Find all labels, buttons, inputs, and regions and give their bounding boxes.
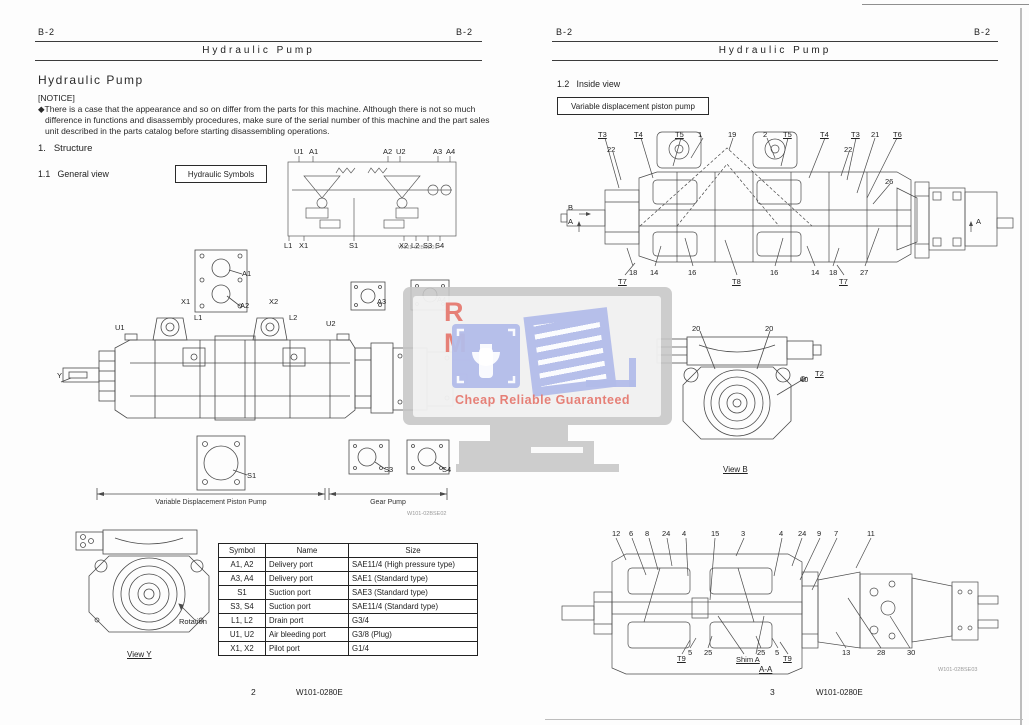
table-cell: Air bleeding port	[266, 628, 349, 642]
table-cell: Delivery port	[266, 558, 349, 572]
section-title: Hydraulic Pump	[38, 73, 144, 87]
hydraulic-symbols-diagram: W101-02BSE01 U1A1A2U2A3A4L1X1S1X2L2S3S4	[280, 146, 460, 251]
diagram-label: A4	[437, 296, 446, 304]
diagram-label: 18	[829, 269, 837, 277]
diagram-label: 4	[779, 530, 783, 538]
diagram-label: 15	[711, 530, 719, 538]
diagram-label: 1	[698, 131, 702, 139]
diagram-label: 5	[688, 649, 692, 657]
diagram-label: S3	[384, 466, 393, 474]
table-header-row: Symbol Name Size	[219, 544, 478, 558]
header-rule-r2	[552, 60, 998, 61]
page-edge-right	[1020, 8, 1022, 725]
diagram-label: T3	[598, 131, 607, 139]
page-code-right-r: B-2	[974, 27, 991, 37]
diagram-label: T4	[634, 131, 643, 139]
chapter-title: Hydraulic Pump	[35, 45, 482, 56]
general-view-drawing	[55, 248, 470, 523]
monitor-neck	[490, 425, 568, 441]
diagram-label: A2	[240, 302, 249, 310]
diagram-label: 9	[817, 530, 821, 538]
page-edge-top	[862, 4, 1029, 5]
diagram-label: L2	[411, 242, 419, 250]
chapter-title-r: Hydraulic Pump	[552, 45, 998, 56]
manual-spread: B-2 B-2 Hydraulic Pump Hydraulic Pump [N…	[0, 0, 1029, 725]
table-row: A1, A2Delivery portSAE11/4 (High pressur…	[219, 558, 478, 572]
diagram-label: S1	[247, 472, 256, 480]
heading-structure: 1. Structure	[38, 143, 92, 154]
diagram-label: 6	[629, 530, 633, 538]
diagram-label: X1	[181, 298, 190, 306]
table-cell: U1, U2	[219, 628, 266, 642]
figure-code: W101-02BSE02	[407, 511, 446, 517]
diagram-label: 2	[763, 131, 767, 139]
section-aa-diagram: A-A W101-02BSE03 12682441534249711T9525S…	[560, 520, 1022, 682]
port-table-body: A1, A2Delivery portSAE11/4 (High pressur…	[219, 558, 478, 656]
diagram-label: B	[568, 204, 573, 212]
diagram-label: A	[568, 218, 573, 226]
table-cell: SAE1 (Standard type)	[349, 572, 478, 586]
diagram-label: A3	[433, 148, 442, 156]
hydraulic-symbols-drawing	[280, 146, 460, 251]
diagram-label: T8	[732, 278, 741, 286]
diagram-label: 26	[885, 178, 893, 186]
diagram-label: A1	[309, 148, 318, 156]
table-cell: SAE11/4 (Standard type)	[349, 600, 478, 614]
monitor-base	[456, 464, 619, 472]
diagram-label: A1	[242, 270, 251, 278]
diagram-label: 25	[704, 649, 712, 657]
diagram-label: L1	[284, 242, 292, 250]
view-b-caption: View B	[723, 465, 748, 474]
diagram-label: 40	[800, 376, 808, 384]
diagram-label: T4	[820, 131, 829, 139]
diagram-label: X2	[399, 242, 408, 250]
doc-number-left: W101-0280E	[296, 688, 343, 697]
book-icon-edge	[629, 358, 636, 387]
diagram-label: T7	[839, 278, 848, 286]
pedestal-slot	[531, 447, 583, 453]
diagram-label: 19	[728, 131, 736, 139]
view-b-diagram: View B 202040T2	[655, 313, 870, 481]
page-code-right: B-2	[456, 27, 473, 37]
table-cell: L1, L2	[219, 614, 266, 628]
notice-label: [NOTICE]	[38, 93, 75, 103]
diagram-label: 7	[834, 530, 838, 538]
diagram-label: Y	[57, 372, 62, 380]
figure-code: W101-02BSE03	[938, 667, 977, 673]
diagram-label: U2	[326, 320, 336, 328]
diagram-label: T9	[783, 655, 792, 663]
table-row: S3, S4Suction portSAE11/4 (Standard type…	[219, 600, 478, 614]
diagram-label: T9	[677, 655, 686, 663]
diagram-label: 18	[629, 269, 637, 277]
dim-label-piston-pump: Variable Displacement Piston Pump	[155, 499, 266, 506]
view-b-drawing	[655, 313, 870, 463]
inside-view-top-diagram: T322T4T51192T5T4T32221T626BAA18T71416T81…	[557, 118, 1019, 298]
diagram-label: A3	[377, 298, 386, 306]
table-cell: Suction port	[266, 586, 349, 600]
watermark-tagline: Cheap Reliable Guaranteed	[455, 393, 630, 407]
diagram-label: 27	[860, 269, 868, 277]
port-table: Symbol Name Size A1, A2Delivery portSAE1…	[218, 543, 478, 656]
diagram-label: S3	[423, 242, 432, 250]
dim-label-gear-pump: Gear Pump	[370, 499, 406, 506]
diagram-label: S4	[435, 242, 444, 250]
diagram-label: A2	[383, 148, 392, 156]
diagram-label: 20	[765, 325, 773, 333]
diagram-label: 14	[811, 269, 819, 277]
diagram-label: A4	[446, 148, 455, 156]
diagram-label: 5	[775, 649, 779, 657]
table-cell: G3/4	[349, 614, 478, 628]
page-code-left-r: B-2	[556, 27, 573, 37]
diagram-label: 24	[798, 530, 806, 538]
diagram-label: Shim A	[736, 656, 760, 664]
piston-pump-box: Variable displacement piston pump	[557, 97, 709, 115]
page-number-right: 3	[770, 687, 775, 697]
diagram-label: X2	[269, 298, 278, 306]
diagram-label: 21	[871, 131, 879, 139]
diagram-label: T7	[618, 278, 627, 286]
table-cell: S3, S4	[219, 600, 266, 614]
heading-inside-view: 1.2 Inside view	[557, 79, 620, 89]
page-number-left: 2	[251, 687, 256, 697]
diagram-label: X1	[299, 242, 308, 250]
diagram-label: 12	[612, 530, 620, 538]
diagram-label: 14	[650, 269, 658, 277]
header-rule-2	[35, 60, 482, 61]
view-y-diagram: View Y Rotation	[75, 528, 225, 663]
table-cell: G3/8 (Plug)	[349, 628, 478, 642]
section-aa-caption: A-A	[759, 665, 772, 674]
view-y-drawing	[75, 528, 225, 646]
diagram-label: 4	[682, 530, 686, 538]
diagram-label: L1	[194, 314, 202, 322]
diagram-label: 13	[842, 649, 850, 657]
diagram-label: 25	[757, 649, 765, 657]
diagram-label: 11	[867, 530, 875, 538]
hydraulic-symbols-box: Hydraulic Symbols	[175, 165, 267, 183]
diagram-label: 22	[607, 146, 615, 154]
table-cell: S1	[219, 586, 266, 600]
notice-text: ◆There is a case that the appearance and…	[38, 104, 493, 136]
diagram-label: 20	[692, 325, 700, 333]
table-cell: A3, A4	[219, 572, 266, 586]
book-icon-base	[586, 380, 636, 387]
table-row: L1, L2Drain portG3/4	[219, 614, 478, 628]
table-cell: SAE11/4 (High pressure type)	[349, 558, 478, 572]
inside-view-top-drawing	[557, 118, 1019, 298]
diagram-label: 3	[741, 530, 745, 538]
table-row: X1, X2Pilot portG1/4	[219, 642, 478, 656]
diagram-label: T3	[851, 131, 860, 139]
table-row: S1Suction portSAE3 (Standard type)	[219, 586, 478, 600]
diagram-label: 16	[770, 269, 778, 277]
diagram-label: L2	[289, 314, 297, 322]
book-icon	[523, 307, 616, 397]
page-edge-bottom	[545, 719, 1023, 720]
table-cell: Drain port	[266, 614, 349, 628]
diagram-label: 24	[662, 530, 670, 538]
heading-general-view: 1.1 General view	[38, 169, 109, 179]
table-cell: SAE3 (Standard type)	[349, 586, 478, 600]
diagram-label: U1	[294, 148, 304, 156]
monitor-pedestal	[459, 441, 594, 464]
diagram-label: T6	[893, 131, 902, 139]
diagram-label: Rotation	[179, 618, 207, 626]
header-rule	[35, 41, 482, 42]
doc-number-right: W101-0280E	[816, 688, 863, 697]
diagram-label: U2	[396, 148, 406, 156]
diagram-label: 28	[877, 649, 885, 657]
table-row: A3, A4Delivery portSAE1 (Standard type)	[219, 572, 478, 586]
col-size: Size	[349, 544, 478, 558]
col-name: Name	[266, 544, 349, 558]
table-cell: Suction port	[266, 600, 349, 614]
col-symbol: Symbol	[219, 544, 266, 558]
table-cell: G1/4	[349, 642, 478, 656]
diagram-label: S4	[442, 466, 451, 474]
table-cell: Delivery port	[266, 572, 349, 586]
diagram-label: 16	[688, 269, 696, 277]
table-cell: Pilot port	[266, 642, 349, 656]
diagram-label: U1	[115, 324, 125, 332]
diagram-label: T5	[783, 131, 792, 139]
table-row: U1, U2Air bleeding portG3/8 (Plug)	[219, 628, 478, 642]
header-rule-r	[552, 41, 998, 42]
page-code-left: B-2	[38, 27, 55, 37]
diagram-label: 22	[844, 146, 852, 154]
diagram-label: T5	[675, 131, 684, 139]
diagram-label: T2	[815, 370, 824, 378]
table-cell: X1, X2	[219, 642, 266, 656]
diagram-label: 30	[907, 649, 915, 657]
diagram-label: S1	[349, 242, 358, 250]
view-y-caption: View Y	[127, 650, 152, 659]
diagram-label: A	[976, 218, 981, 226]
table-cell: A1, A2	[219, 558, 266, 572]
general-view-diagram: Variable Displacement Piston Pump Gear P…	[55, 248, 470, 523]
diagram-label: 8	[645, 530, 649, 538]
